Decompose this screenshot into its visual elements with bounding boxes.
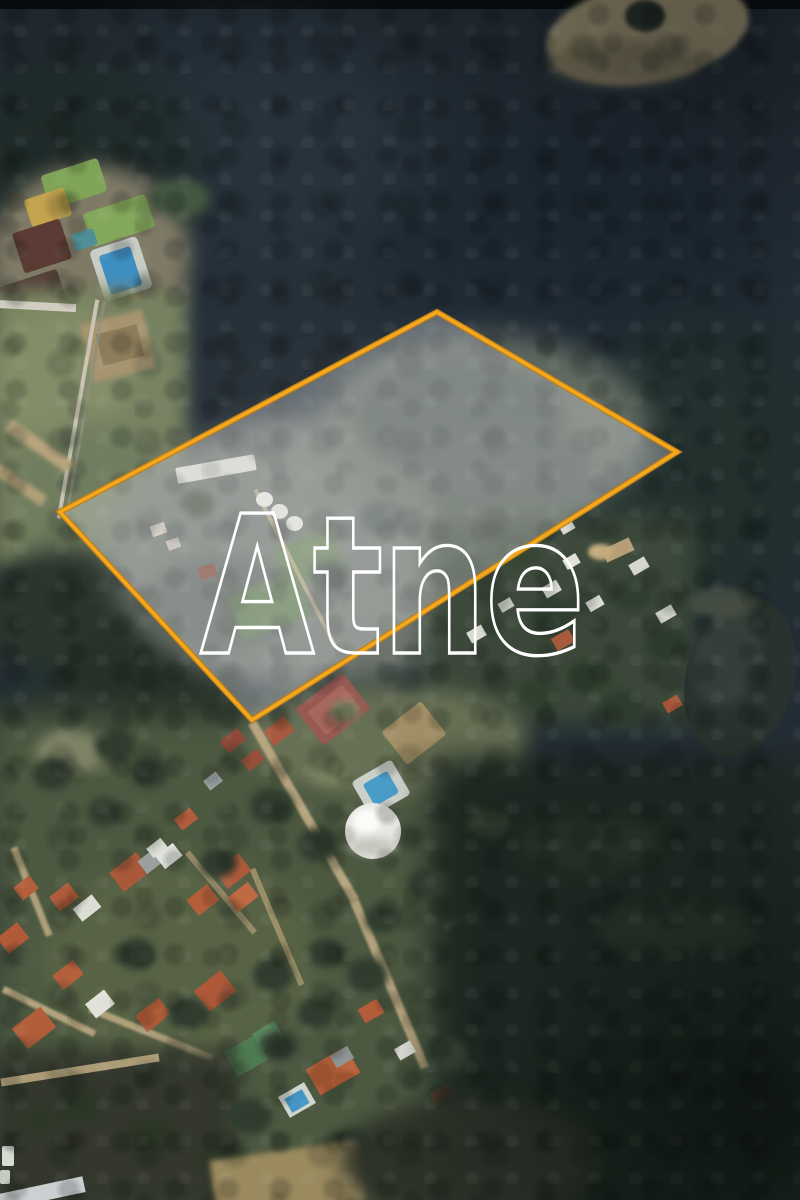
watermark-text: Atne (200, 492, 584, 684)
satellite-photo: Atne (0, 0, 800, 1200)
